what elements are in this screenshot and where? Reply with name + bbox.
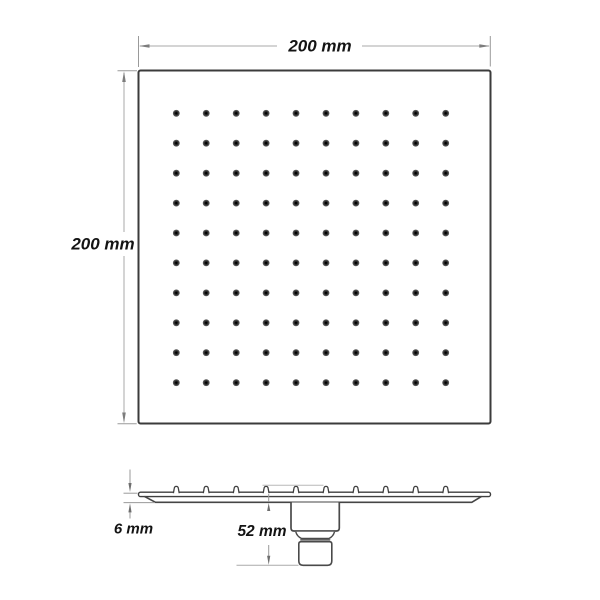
svg-text:6 mm: 6 mm [114, 521, 153, 538]
svg-text:200 mm: 200 mm [70, 235, 134, 254]
svg-text:200 mm: 200 mm [287, 37, 351, 56]
svg-text:52 mm: 52 mm [237, 523, 286, 540]
